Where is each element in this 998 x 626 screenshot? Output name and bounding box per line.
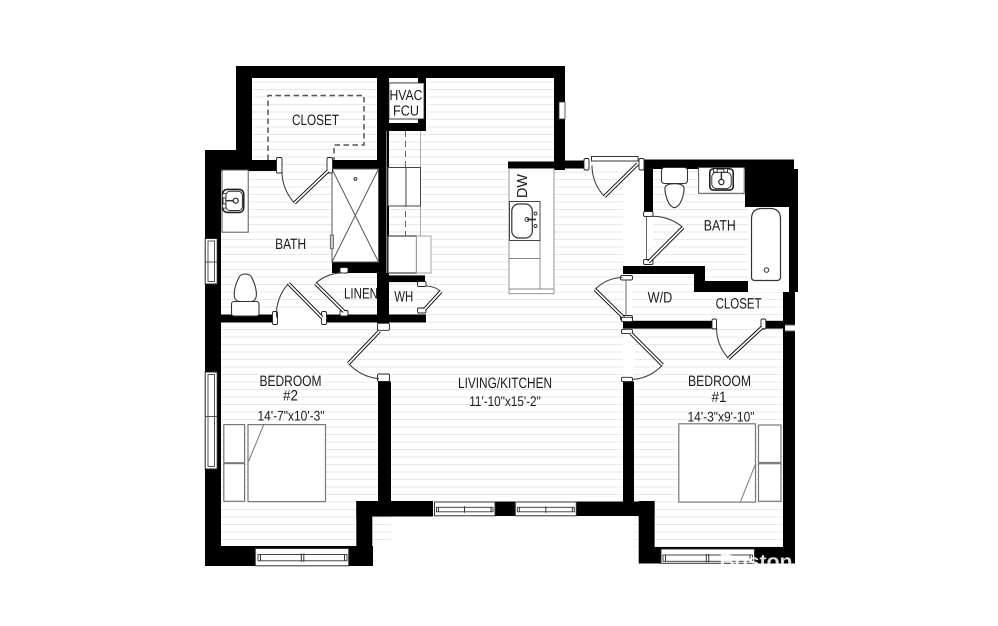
- svg-text:CLOSET: CLOSET: [716, 296, 762, 313]
- svg-text:LIVING/KITCHEN: LIVING/KITCHEN: [458, 375, 552, 392]
- svg-text:HVAC: HVAC: [390, 88, 423, 104]
- svg-text:FCU: FCU: [393, 104, 419, 120]
- svg-text:W/D: W/D: [648, 290, 673, 307]
- svg-text:#2: #2: [283, 388, 298, 405]
- svg-text:14'-3"x9'-10": 14'-3"x9'-10": [688, 409, 755, 425]
- svg-text:DW: DW: [515, 174, 531, 198]
- svg-text:11'-10"x15'-2": 11'-10"x15'-2": [469, 393, 541, 409]
- svg-text:CLOSET: CLOSET: [292, 112, 339, 129]
- svg-text:BATH: BATH: [275, 236, 306, 253]
- svg-text:#1: #1: [712, 389, 727, 406]
- svg-text:BEDROOM: BEDROOM: [688, 373, 751, 390]
- svg-text:14'-7"x10'-3": 14'-7"x10'-3": [258, 408, 325, 424]
- svg-text:Boston: Boston: [720, 552, 793, 573]
- svg-text:LINEN: LINEN: [344, 286, 378, 303]
- svg-text:BATH: BATH: [704, 218, 736, 235]
- svg-text:WH: WH: [394, 289, 413, 306]
